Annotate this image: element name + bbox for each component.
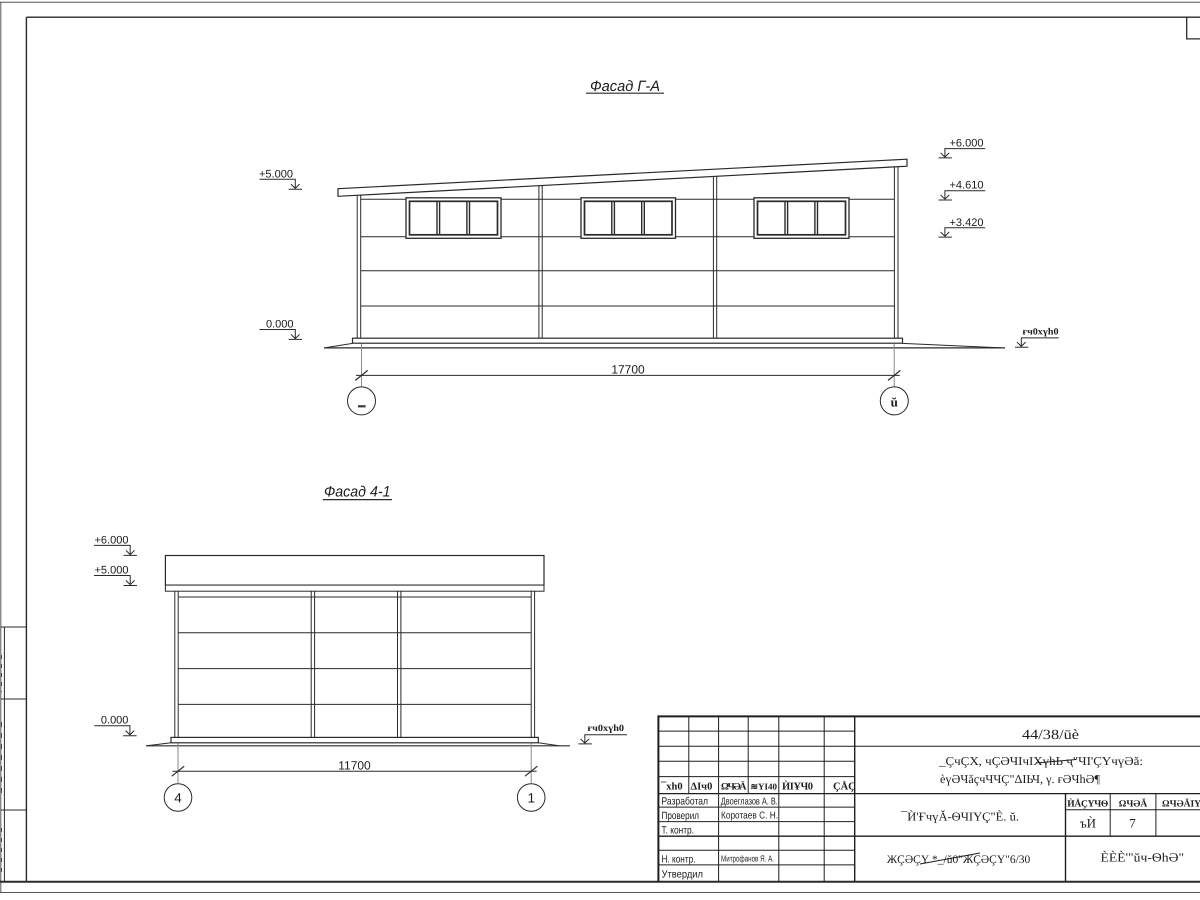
svg-text:Митрофанов Я. А.: Митрофанов Я. А. <box>721 853 774 863</box>
svg-text:+5.000: +5.000 <box>95 565 129 577</box>
svg-text:+4.610: +4.610 <box>950 180 984 192</box>
svg-text:ЍÅÇΥЧѲ: ЍÅÇΥЧѲ <box>1067 797 1108 809</box>
svg-text:44/38/ūè: 44/38/ūè <box>1022 728 1079 743</box>
svg-text:Т. контр.: Т. контр. <box>662 824 695 836</box>
svg-text:ΩЧӘĂΙΥ: ΩЧӘĂΙΥ <box>1162 797 1200 809</box>
svg-text:Проверил: Проверил <box>662 810 700 822</box>
svg-text:ÇÅÇ: ÇÅÇ <box>833 781 856 793</box>
svg-text:Разработал: Разработал <box>662 796 709 808</box>
svg-text:0.000: 0.000 <box>101 715 129 727</box>
svg-text:Фасад Г-А: Фасад Г-А <box>590 78 660 95</box>
svg-text:Фасад 4-1: Фасад 4-1 <box>324 484 391 501</box>
svg-text:ΩЧӘĂ: ΩЧӘĂ <box>1119 797 1148 809</box>
svg-text:1: 1 <box>527 790 535 805</box>
svg-text:ғч0хүh0: ғч0хүh0 <box>1023 327 1059 337</box>
svg-text:Коротаев С. Н.: Коротаев С. Н. <box>721 810 778 821</box>
svg-text:ЍΙҰЧ0: ЍΙҰЧ0 <box>782 780 813 793</box>
svg-text:+5.000: +5.000 <box>259 168 293 180</box>
svg-text:Н. контр.: Н. контр. <box>662 853 696 865</box>
svg-text:¯хh0: ¯хh0 <box>660 782 683 793</box>
svg-text:ŭ: ŭ <box>891 394 898 409</box>
svg-text:17700: 17700 <box>611 363 645 377</box>
svg-text:ÈÈÈ'"ŭч-ѲһӘ": ÈÈÈ'"ŭч-ѲһӘ" <box>1101 851 1185 865</box>
svg-text:11700: 11700 <box>338 759 371 773</box>
svg-text:ЖÇӘÇҮ *_/ŭ0"ЖÇӘÇҮ"6/30: ЖÇӘÇҮ *_/ŭ0"ЖÇӘÇҮ"6/30 <box>887 854 1031 866</box>
svg-text:¯Ѝ'ҒчүǍ-ѲЧΙΥÇ"È. ŭ.: ¯Ѝ'ҒчүǍ-ѲЧΙΥÇ"È. ŭ. <box>900 809 1019 823</box>
svg-text:Утвердил: Утвердил <box>662 868 704 880</box>
svg-text:ΩЧӘĂ: ΩЧӘĂ <box>721 781 747 793</box>
svg-text:+3.420: +3.420 <box>950 217 984 229</box>
svg-text:èүӘЧăçчЧЧÇ"ΔΙЬЧ, γ. ғӘЧһӘ¶: èүӘЧăçчЧЧÇ"ΔΙЬЧ, γ. ғӘЧһӘ¶ <box>940 772 1101 786</box>
svg-text:0.000: 0.000 <box>266 319 294 331</box>
svg-text:ғч0хүh0: ғч0хүh0 <box>588 724 625 734</box>
svg-text:≋ΥΙ40: ≋ΥΙ40 <box>751 782 778 792</box>
svg-text:ΔΙч0: ΔΙч0 <box>691 782 713 793</box>
svg-text:ъЍ: ъЍ <box>1080 815 1096 830</box>
svg-text:_ÇчÇХ, чÇӘЧΙчΙХүhЬ ҷ"ЧΙ'ÇҮчүӘă: _ÇчÇХ, чÇӘЧΙчΙХүhЬ ҷ"ЧΙ'ÇҮчүӘă: <box>938 754 1143 768</box>
svg-text:Двоеглазов А. В.: Двоеглазов А. В. <box>721 796 778 807</box>
svg-text:+6.000: +6.000 <box>95 534 129 546</box>
svg-text:4: 4 <box>174 790 182 805</box>
svg-text:+6.000: +6.000 <box>950 138 984 150</box>
svg-text:7: 7 <box>1129 816 1136 831</box>
